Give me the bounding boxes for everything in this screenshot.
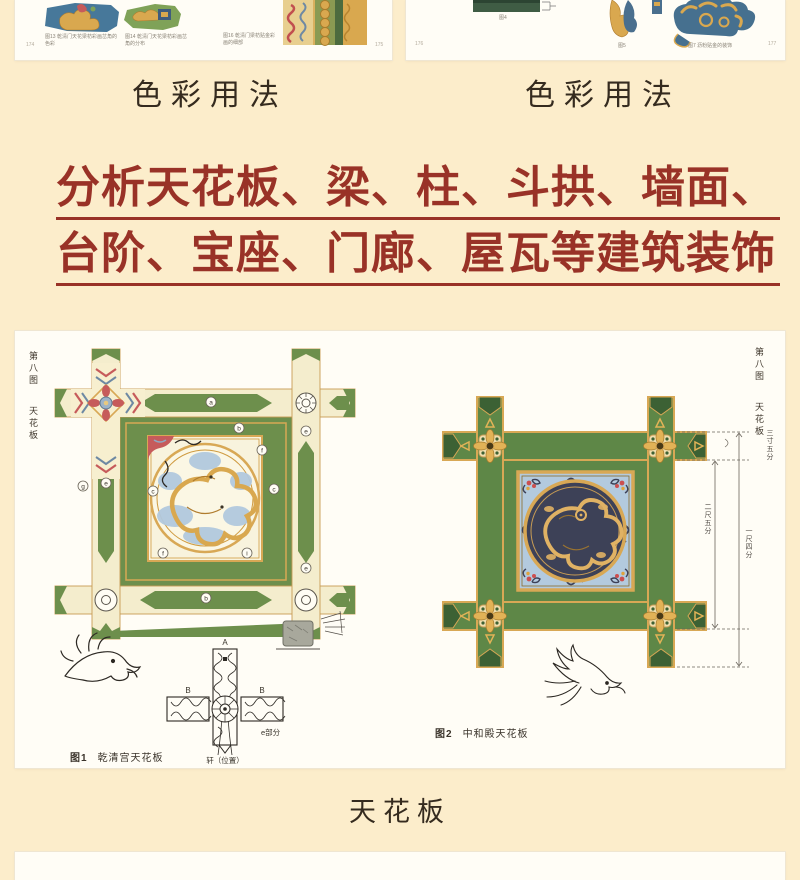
promo-headline: 分析天花板、梁、柱、斗拱、墙面、 台阶、宝座、门廊、屋瓦等建筑装饰 [56, 166, 780, 298]
blue-corner-painting [45, 3, 119, 32]
page-number: 175 [375, 42, 383, 48]
green-beam-diagram [473, 0, 556, 12]
figure1-caption-text: 乾清宫天花板 [98, 753, 164, 764]
figure2-caption: 图2中和殿天花板 [435, 725, 529, 740]
book-page-fragment-left: 图13 乾清门天花梁枋彩画岔角的色彩 图14 乾清门天花梁枋彩画岔角的分布 图1… [15, 0, 392, 60]
gold-flame-painting [610, 0, 662, 37]
callout-letter: b [237, 425, 241, 432]
phoenix-sketch [545, 645, 625, 705]
color-usage-artwork-left [15, 0, 392, 60]
dragon-medallion-left [148, 436, 262, 561]
figure1-ceiling-panel: a b f g e c c f i b e e [55, 349, 355, 681]
promo-headline-line1: 分析天花板、梁、柱、斗拱、墙面、 [56, 166, 780, 220]
callout-letter: f [162, 550, 164, 557]
figure-caption: 图4 [499, 15, 507, 22]
margin-label-title: 天花板 [754, 402, 764, 438]
margin-label-right: 第八图 天花板 [753, 347, 766, 438]
figure1-caption-no: 图1 [70, 753, 88, 764]
product-detail-image: 图13 乾清门天花梁枋彩画岔角的色彩 图14 乾清门天花梁枋彩画岔角的分布 图1… [0, 0, 800, 880]
promo-headline-line2: 台阶、宝座、门廊、屋瓦等建筑装饰 [56, 232, 780, 286]
dragon-medallion-right [518, 472, 633, 590]
detail-label-a: A [222, 638, 228, 647]
figure-caption: 图5 [618, 43, 626, 50]
figure-caption: 图14 乾清门天花梁枋彩画岔角的分布 [125, 34, 191, 48]
figure-caption: 图13 乾清门天花梁枋彩画岔角的色彩 [45, 34, 117, 48]
callout-letter: e [304, 565, 308, 572]
callout-letter: g [81, 483, 85, 490]
detail-label-part: e部分 [261, 727, 281, 737]
callout-letter: i [246, 550, 247, 557]
detail-label-b-left: B [185, 686, 190, 695]
section-title-right: 色彩用法 [473, 70, 733, 114]
book-page-fragment-right: 图4 图5 图7 沥粉贴金的装饰 176 177 [406, 0, 785, 60]
callout-letter: f [261, 447, 263, 454]
figure1-caption: 图1乾清宫天花板 [70, 749, 164, 764]
margin-label-left: 第八图 天花板 [27, 351, 40, 442]
dimension-label-inner: 二尺五分 [702, 503, 712, 535]
next-section-card-edge [15, 852, 785, 880]
bottom-section-title: 天花板 [300, 790, 500, 829]
green-corner-painting [124, 4, 181, 30]
callout-letter: e [304, 428, 308, 435]
figure2-caption-no: 图2 [435, 729, 453, 740]
color-usage-artwork-right [406, 0, 785, 60]
detail-label-b-right: B [259, 686, 264, 695]
book-spread-ceiling-panels: a b f g e c c f i b e e [15, 331, 785, 768]
beam-cross-detail [167, 649, 285, 755]
page-number: 176 [415, 41, 423, 47]
spread-artwork: a b f g e c c f i b e e [15, 331, 785, 768]
page-number: 174 [26, 42, 34, 48]
callout-letter: b [204, 595, 208, 602]
blue-cloud-painting [674, 0, 755, 47]
section-title-left: 色彩用法 [80, 70, 340, 114]
figure-caption: 图7 沥粉贴金的装饰 [688, 43, 748, 50]
dimension-label-top: 三寸五分 [764, 429, 774, 461]
margin-label-figure-no: 第八图 [28, 351, 38, 387]
page-number: 177 [768, 41, 776, 47]
dimension-lines [677, 432, 749, 667]
callout-letter: e [104, 480, 108, 487]
dragon-head-sketch [61, 633, 140, 681]
callout-letter: a [209, 399, 213, 406]
detail-label-position: 轩（位置） [206, 755, 244, 765]
gilded-border-painting [283, 0, 367, 46]
dimension-label-outer: 一尺四分 [743, 527, 753, 559]
figure-caption: 图16 乾清门梁枋贴金彩画的细部 [223, 33, 279, 47]
margin-label-figure-no: 第八图 [754, 347, 764, 383]
margin-label-title: 天花板 [28, 406, 38, 442]
figure2-caption-text: 中和殿天花板 [463, 729, 529, 740]
